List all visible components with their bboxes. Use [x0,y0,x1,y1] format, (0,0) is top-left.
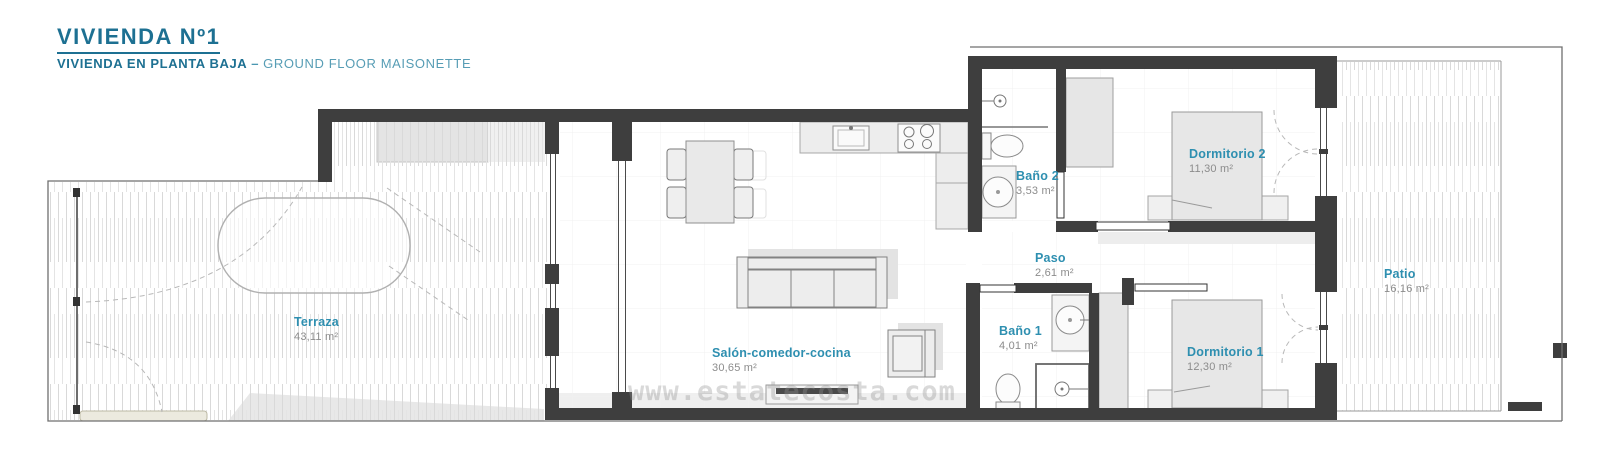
wall-east [1315,196,1337,292]
nightstand [1262,196,1288,220]
window-jamb [545,388,559,408]
room-area: 3,53 m² [1016,185,1059,198]
toilet [996,374,1020,404]
shower-head-dot [999,100,1002,103]
door-mullion [1319,149,1328,154]
wall-bath1-north [1014,283,1092,293]
bath1-sliding-door [980,285,1016,292]
patio-hatch [1339,62,1501,411]
armchair-cushion [893,336,922,371]
railing-post [73,188,80,197]
room-name: Baño 2 [1016,170,1059,183]
shower-head-dot [1061,388,1064,391]
kitchen-counter-return [936,153,968,229]
room-name: Baño 1 [999,325,1042,338]
room-area: 43,11 m² [294,331,339,344]
room-area: 2,61 m² [1035,267,1074,280]
wall-bath1-east [1089,293,1099,420]
door-mullion [1319,325,1328,330]
doormat [80,411,207,421]
room-name: Dormitorio 1 [1187,346,1264,359]
kitchen-counter [800,122,968,153]
nightstand [1148,196,1172,220]
hall-shadow [1098,232,1318,244]
window-jamb [545,308,559,356]
wall-bath2-west [968,56,982,232]
toilet-tank [982,133,991,159]
floor-plan-canvas: VIVIENDA Nº1 VIVIENDA EN PLANTA BAJA–GRO… [0,0,1600,463]
wall-hall-north [1168,221,1318,232]
room-label-dormitorio2: Dormitorio 2 11,30 m² [1189,148,1266,176]
wall-bath2-east [1056,69,1066,172]
room-area: 30,65 m² [712,362,851,375]
washbasin-drain [1068,318,1072,322]
railing-post [73,405,80,414]
bedroom2-sliding-door [1096,222,1170,230]
room-area: 12,30 m² [1187,361,1264,374]
sofa-back [748,258,876,269]
wall-east [1315,56,1337,108]
page-title: VIVIENDA Nº1 [57,24,220,54]
wall-terrace-step [318,109,332,182]
window-jamb [545,264,559,284]
bedroom1-floor [982,232,1315,408]
room-label-salon: Salón-comedor-cocina 30,65 m² [712,347,851,375]
room-label-patio: Patio 16,16 m² [1384,268,1429,296]
sofa-cushion [748,270,791,307]
boundary-stub [1553,343,1567,358]
wall-south [545,408,1337,420]
room-name: Dormitorio 2 [1189,148,1266,161]
wall-north [318,109,982,122]
dining-chair [667,149,686,180]
room-label-bano2: Baño 2 3,53 m² [1016,170,1059,198]
wardrobe [1066,78,1113,167]
room-label-terraza: Terraza 43,11 m² [294,316,339,344]
subtitle-spanish: VIVIENDA EN PLANTA BAJA [57,56,247,71]
patio-area [1337,61,1501,411]
wall-slider-jamb [612,109,632,161]
room-name: Salón-comedor-cocina [712,347,851,360]
page-subtitle: VIVIENDA EN PLANTA BAJA–GROUND FLOOR MAI… [57,56,471,71]
pool-outline [218,198,410,293]
room-area: 11,30 m² [1189,163,1266,176]
room-label-bano1: Baño 1 4,01 m² [999,325,1042,353]
dining-table [686,141,734,223]
toilet [991,135,1023,157]
wall-hall-north [1056,221,1098,232]
room-area: 4,01 m² [999,340,1042,353]
watermark: www.estatecosta.com [628,376,956,407]
dining-chair [734,149,753,180]
room-name: Patio [1384,268,1429,281]
wall-bath1-west [966,283,980,420]
dining-chair [667,187,686,218]
room-name: Paso [1035,252,1074,265]
dining-chair [734,187,753,218]
sofa-cushion [834,270,876,307]
armchair-back [925,330,935,377]
sofa-cushion [791,270,834,307]
room-area: 16,16 m² [1384,283,1429,296]
cooktop [898,124,940,152]
room-label-paso: Paso 2,61 m² [1035,252,1074,280]
wall-stub [1122,278,1134,305]
subtitle-dash: – [247,56,263,71]
railing-post [73,297,80,306]
bedroom1-sliding-door [1135,284,1207,291]
wardrobe [1099,293,1128,412]
room-label-dormitorio1: Dormitorio 1 12,30 m² [1187,346,1264,374]
faucet [849,126,853,130]
room-name: Terraza [294,316,339,329]
wall-north-upper [968,56,1318,69]
boundary-stub [1508,402,1542,411]
subtitle-english: GROUND FLOOR MAISONETTE [263,56,471,71]
window-jamb [545,120,559,154]
washbasin-drain [996,190,1000,194]
